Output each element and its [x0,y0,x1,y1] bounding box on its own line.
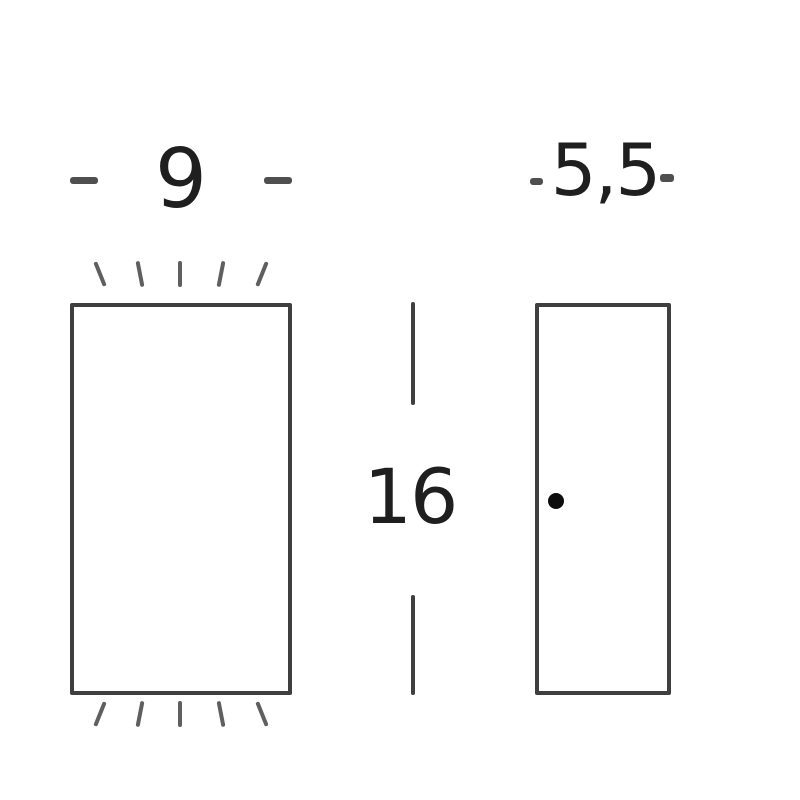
light-ray-tick [136,701,145,727]
light-ray-tick [178,261,182,287]
light-ray-tick [217,701,226,727]
light-ray-tick [93,701,106,727]
front-view-outline [70,303,292,695]
height-dimension-line-top [411,302,415,405]
light-rays-bottom [70,701,292,729]
width-dimension-label: 9 [130,138,230,222]
light-rays-top [70,261,292,289]
light-ray-tick [255,261,268,287]
light-ray-tick [136,261,145,287]
fixing-hole-dot [548,493,564,509]
light-ray-tick [255,701,268,727]
width-dimension-dash-left [70,177,98,184]
height-dimension-line-bottom [411,595,415,695]
light-ray-tick [93,261,106,287]
width-dimension-dash-right [264,177,292,184]
dimension-diagram: 9 5,5 16 [0,0,800,800]
height-dimension-label: 16 [355,458,465,536]
light-ray-tick [217,261,226,287]
depth-dimension-label: 5,5 [535,132,675,208]
light-ray-tick [178,701,182,727]
depth-dimension-dash-right [660,174,674,182]
